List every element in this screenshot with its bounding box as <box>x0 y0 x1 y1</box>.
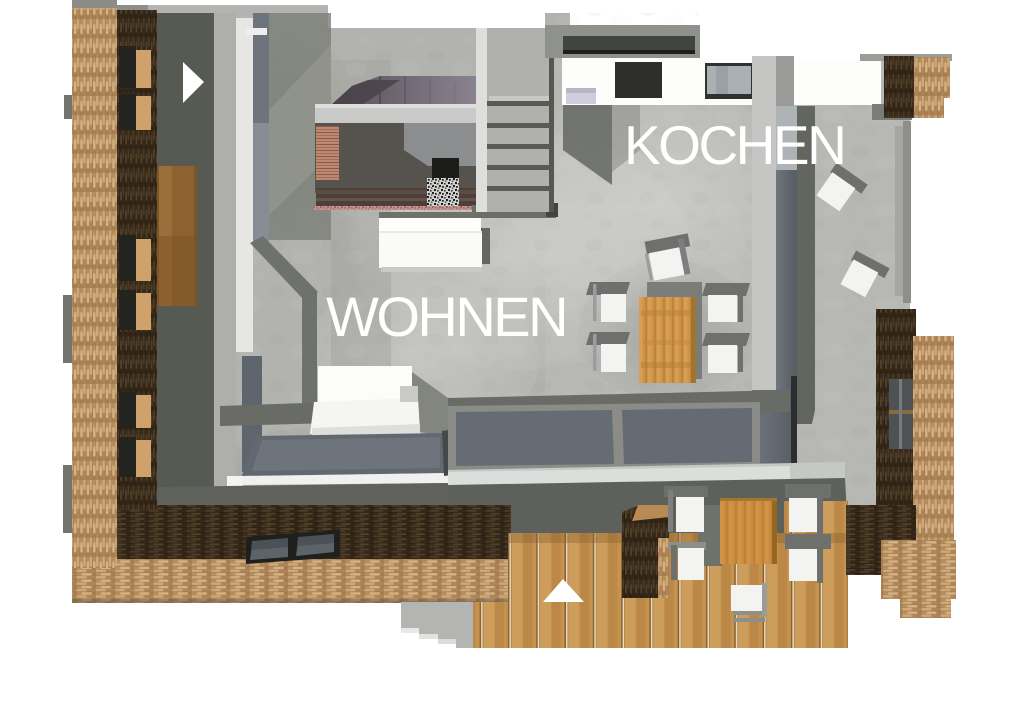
svg-text:KOCHEN: KOCHEN <box>624 114 844 176</box>
svg-text:WOHNEN: WOHNEN <box>326 285 566 348</box>
